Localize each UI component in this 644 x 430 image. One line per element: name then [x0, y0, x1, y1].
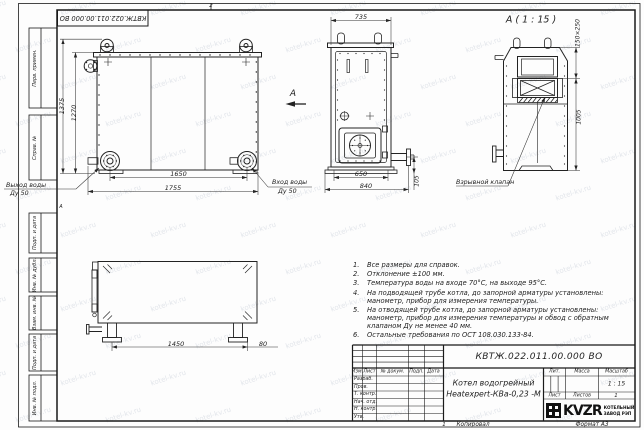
- dim-650: 650: [355, 170, 367, 178]
- row-utv: Утв.: [354, 415, 364, 420]
- logo-text: KVZR: [563, 404, 602, 418]
- designation-inverted: КВТЖ.022.011.00.000 ВО: [59, 14, 146, 22]
- stamp-sprav-no: Справ. №: [32, 135, 38, 159]
- note-item: 2.Отклонение ±100 мм.: [353, 270, 635, 278]
- technical-notes: 1.Все размеры для справок. 2.Отклонение …: [353, 261, 635, 341]
- sheets-label: Листов: [573, 393, 591, 398]
- col-izm: Изм.: [352, 370, 363, 375]
- title-designation: КВТЖ.022.011.00.000 ВО: [475, 352, 602, 362]
- row-razrab: Разраб.: [354, 377, 373, 382]
- manufacturer-logo: KVZR КОТЕЛЬНЫЙ ЗАВОД РЭП: [546, 401, 634, 420]
- stamp-podp-data-2: Подп. и дата: [32, 335, 38, 369]
- row-tkontr: Т. контр.: [354, 392, 376, 397]
- dim-840: 840: [360, 182, 372, 190]
- note-item: 4.На подводящей трубе котла, до запорной…: [353, 289, 635, 305]
- bottom-view: [87, 262, 258, 343]
- drawing-sheet: kotel-kv.rukotel-kv.rukotel-kv.rukotel-k…: [0, 0, 644, 430]
- mass-label: Масса: [574, 370, 589, 375]
- front-view: [84, 39, 261, 173]
- dim-735: 735: [355, 13, 367, 21]
- logo-mark-icon: [546, 403, 561, 418]
- side-view: [325, 33, 414, 174]
- view-a-title: А ( 1 : 15 ): [506, 15, 556, 26]
- stamp-inv-podl: Инв. № подл.: [32, 381, 38, 416]
- note-item: 5.На отводящей трубе котла, до запорной …: [353, 306, 635, 331]
- dim-80: 80: [259, 340, 267, 348]
- product-name-line2: Heatexpert-КВа-0,23 -М: [446, 390, 541, 399]
- col-list: Лист: [363, 370, 375, 375]
- stamp-vzam-inv: Взам. инв. №: [32, 296, 38, 330]
- sheet-label: Лист: [548, 393, 560, 398]
- dim-150x250: 150×250: [575, 19, 582, 47]
- scale-label: Масштаб: [605, 370, 628, 375]
- view-direction-arrow: [286, 101, 307, 106]
- note-item: 3.Температура воды на входе 70°С, на вых…: [353, 279, 635, 287]
- dim-1450: 1450: [168, 340, 185, 348]
- stamp-inv-dubl: Инв. № дубл.: [32, 258, 38, 292]
- row-nachotd: Нач. отд.: [354, 400, 377, 405]
- stamp-perv-primen: Перв. примен.: [32, 49, 38, 87]
- note-item: 6.Остальные требования по ОСТ 108.030.13…: [353, 331, 635, 339]
- outlet-label: Выход воды: [6, 182, 46, 189]
- dim-105: 105: [414, 175, 421, 186]
- dim-1375: 1375: [58, 98, 66, 115]
- logo-subtitle-2: ЗАВОД РЭП: [604, 411, 635, 416]
- copy-sheet-number: 1: [442, 422, 446, 428]
- col-podp: Подп.: [409, 370, 424, 375]
- sheets-value: 1: [614, 393, 618, 399]
- zone-mark-left: А: [59, 204, 62, 210]
- lit-label: Лит.: [549, 370, 560, 375]
- zone-mark-top: 2: [209, 3, 213, 9]
- dim-1650: 1650: [170, 170, 187, 178]
- view-a: [493, 38, 568, 171]
- view-arrow-label: А: [290, 89, 296, 99]
- dim-1005: 1005: [576, 109, 583, 124]
- row-nkontr: Н. контр.: [354, 407, 377, 412]
- copied-label: Копировал: [456, 422, 489, 428]
- sheet-frame: [19, 4, 641, 428]
- inlet-label: Вход воды: [272, 179, 307, 186]
- dim-1755: 1755: [165, 184, 182, 192]
- note-item: 1.Все размеры для справок.: [353, 261, 635, 269]
- col-dokum: № докум.: [381, 370, 405, 375]
- dim-1270: 1270: [70, 105, 78, 122]
- explosion-valve-label: Взрывной клапан: [456, 179, 514, 186]
- outlet-dn-label: Ду 50: [10, 190, 29, 197]
- drawing-linework: [0, 0, 644, 430]
- row-prov: Пров.: [354, 385, 368, 390]
- product-name-line1: Котел водогрейный: [453, 379, 535, 388]
- bottom-view-dimensions: [112, 342, 278, 351]
- format-label: Формат А3: [575, 422, 608, 428]
- col-data: Дата: [427, 370, 439, 375]
- scale-value: 1 : 15: [608, 381, 625, 388]
- front-view-dimensions: [4, 39, 312, 195]
- stamp-podp-data-1: Подп. и дата: [32, 216, 38, 250]
- inlet-dn-label: Ду 50: [278, 188, 297, 195]
